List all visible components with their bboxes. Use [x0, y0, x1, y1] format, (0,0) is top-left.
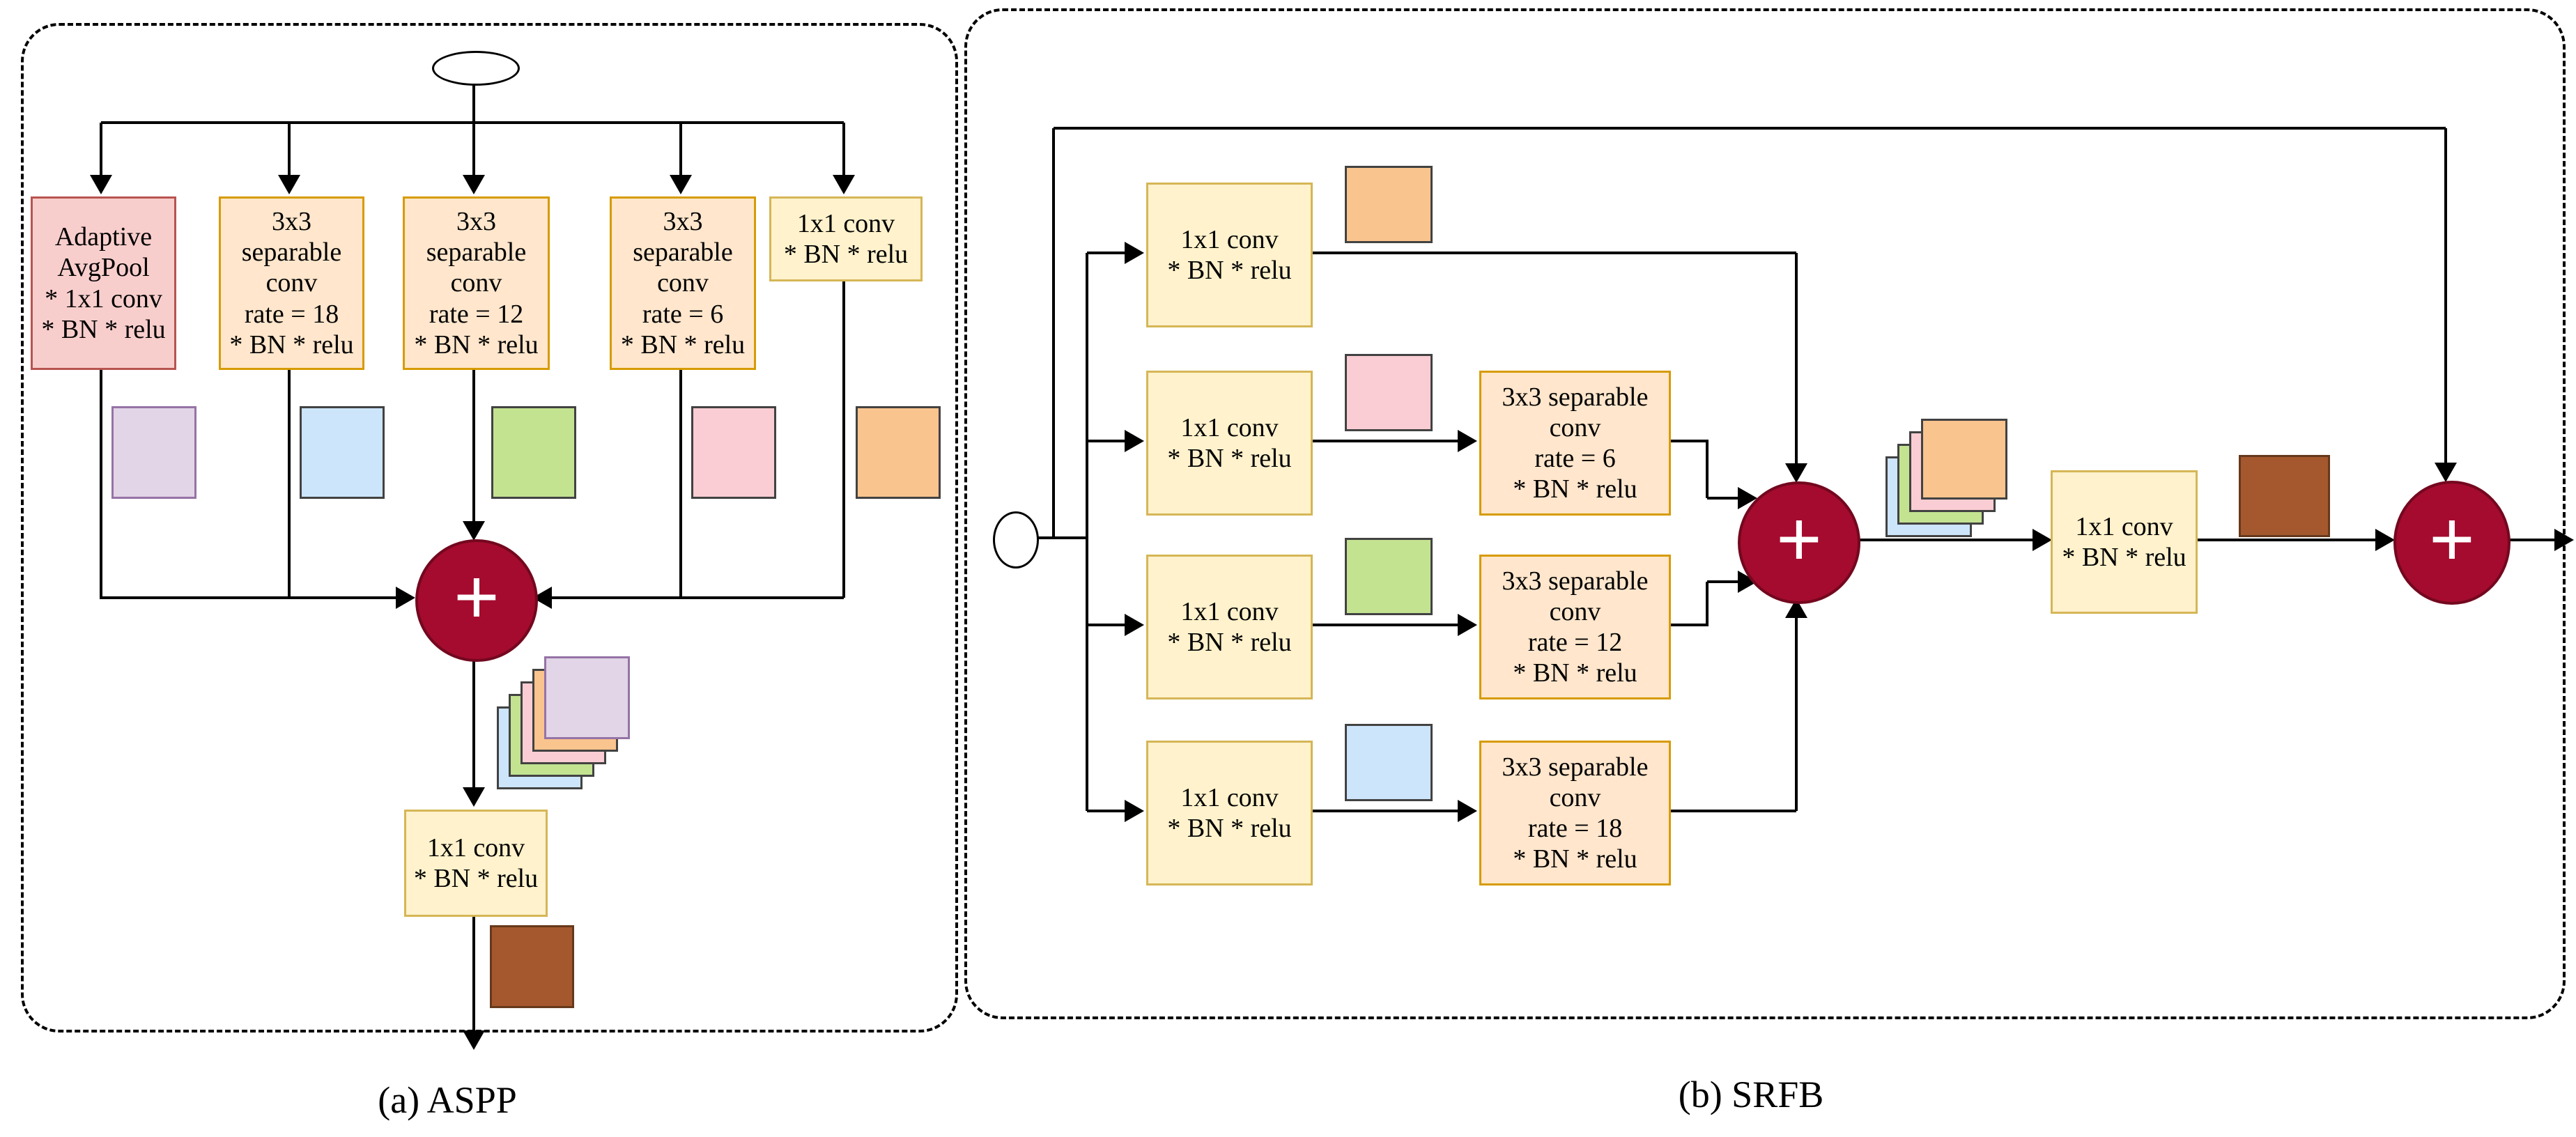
aspp-add-node: +	[415, 539, 538, 662]
aspp-output-conv-box: 1x1 conv* BN * relu	[404, 810, 548, 917]
arrowhead	[463, 787, 485, 807]
srfb-add-node-2: +	[2393, 481, 2511, 605]
text-line: 1x1 conv	[1180, 782, 1278, 813]
srfb-reduce-box-1: 1x1 conv* BN * relu	[1146, 183, 1313, 327]
aspp-sepconv-rate12-box: 3x3separableconvrate = 12* BN * relu	[403, 196, 550, 370]
diagram-canvas: AdaptiveAvgPool* 1x1 conv* BN * relu 3x3…	[0, 0, 2576, 1137]
srfb-projection-box: 1x1 conv* BN * relu	[2051, 470, 2198, 614]
srfb-caption: (b) SRFB	[1679, 1073, 1824, 1116]
arrowhead	[463, 175, 485, 194]
srfb-sepconv-rate18-box: 3x3 separableconvrate = 18* BN * relu	[1479, 741, 1671, 885]
srfb-feature-map-green	[1345, 538, 1433, 615]
text-line: 1x1 conv	[2075, 511, 2173, 542]
text-line: * BN * relu	[784, 239, 908, 270]
arrowhead	[463, 521, 485, 541]
arrowhead	[396, 587, 415, 609]
text-line: 1x1 conv	[1180, 224, 1278, 255]
arrowhead	[2033, 529, 2052, 551]
text-line: * BN * relu	[41, 314, 165, 345]
text-line: * BN * relu	[1167, 443, 1291, 474]
arrowhead	[1125, 430, 1144, 452]
aspp-feature-map-orange	[856, 406, 941, 499]
text-line: rate = 6	[1534, 443, 1615, 474]
aspp-avgpool-box: AdaptiveAvgPool* 1x1 conv* BN * relu	[31, 196, 176, 370]
text-line: 3x3	[663, 206, 703, 237]
text-line: rate = 18	[245, 299, 339, 330]
srfb-feature-map-orange	[1345, 166, 1433, 243]
plus-icon: +	[2429, 500, 2474, 578]
aspp-caption: (a) ASPP	[378, 1078, 517, 1122]
arrowhead	[90, 175, 112, 194]
arrowhead	[1125, 614, 1144, 636]
text-line: * BN * relu	[414, 863, 538, 894]
srfb-add-node-1: +	[1738, 481, 1860, 604]
text-line: 1x1 conv	[427, 833, 525, 863]
arrowhead	[670, 175, 692, 194]
text-line: AvgPool	[57, 252, 149, 283]
text-line: 1x1 conv	[1180, 412, 1278, 443]
srfb-reduce-box-3: 1x1 conv* BN * relu	[1146, 555, 1313, 699]
text-line: 3x3 separable	[1502, 566, 1649, 596]
text-line: 3x3 separable	[1502, 382, 1649, 412]
text-line: rate = 12	[429, 299, 523, 330]
text-line: 1x1 conv	[797, 208, 895, 239]
arrowhead	[463, 1030, 485, 1050]
srfb-stack-map-orange	[1921, 419, 2007, 500]
arrowhead	[1785, 463, 1807, 483]
aspp-stack-map-purple	[544, 656, 630, 739]
srfb-sepconv-rate12-box: 3x3 separableconvrate = 12* BN * relu	[1479, 555, 1671, 699]
text-line: 3x3 separable	[1502, 752, 1649, 782]
srfb-output-map-brown	[2239, 455, 2330, 537]
arrowhead	[833, 175, 855, 194]
text-line: rate = 12	[1528, 627, 1622, 658]
text-line: * BN * relu	[1167, 813, 1291, 844]
srfb-sepconv-rate6-box: 3x3 separableconvrate = 6* BN * relu	[1479, 371, 1671, 516]
aspp-sepconv-rate6-box: 3x3separableconvrate = 6* BN * relu	[610, 196, 756, 370]
text-line: * BN * relu	[414, 330, 538, 360]
text-line: * BN * relu	[1513, 474, 1637, 504]
arrowhead	[1458, 430, 1477, 452]
text-line: conv	[451, 268, 502, 298]
arrowhead	[1125, 242, 1144, 264]
text-line: conv	[1550, 596, 1601, 627]
text-line: rate = 18	[1528, 813, 1622, 844]
text-line: conv	[1550, 782, 1601, 813]
text-line: * BN * relu	[621, 330, 745, 360]
aspp-feature-map-green	[491, 406, 576, 499]
text-line: rate = 6	[642, 299, 723, 330]
aspp-feature-map-blue	[300, 406, 385, 499]
text-line: * 1x1 conv	[45, 284, 162, 314]
text-line: * BN * relu	[1167, 255, 1291, 286]
arrowhead	[1458, 614, 1477, 636]
aspp-feature-map-purple	[111, 406, 196, 499]
text-line: 3x3	[272, 206, 311, 237]
srfb-reduce-box-2: 1x1 conv* BN * relu	[1146, 371, 1313, 516]
text-line: Adaptive	[55, 222, 152, 252]
text-line: * BN * relu	[1513, 844, 1637, 874]
srfb-feature-map-pink	[1345, 354, 1433, 431]
text-line: separable	[633, 237, 732, 268]
text-line: 3x3	[456, 206, 496, 237]
text-line: * BN * relu	[2062, 542, 2186, 573]
aspp-input-node	[432, 51, 520, 86]
text-line: 1x1 conv	[1180, 596, 1278, 627]
srfb-feature-map-blue	[1345, 724, 1433, 801]
arrowhead	[2435, 463, 2457, 482]
aspp-output-map-brown	[490, 925, 574, 1008]
plus-icon: +	[454, 558, 499, 636]
aspp-feature-map-pink	[691, 406, 776, 499]
text-line: conv	[266, 268, 318, 298]
arrowhead	[1125, 800, 1144, 822]
aspp-1x1conv-box: 1x1 conv* BN * relu	[769, 196, 923, 281]
arrowhead	[2375, 529, 2395, 551]
text-line: * BN * relu	[1167, 627, 1291, 658]
text-line: * BN * relu	[1513, 658, 1637, 688]
text-line: separable	[426, 237, 526, 268]
srfb-input-node	[993, 511, 1039, 568]
aspp-sepconv-rate18-box: 3x3separableconvrate = 18* BN * relu	[219, 196, 364, 370]
text-line: conv	[657, 268, 709, 298]
arrowhead	[1458, 800, 1477, 822]
arrowhead	[2554, 529, 2574, 551]
arrowhead	[278, 175, 300, 194]
text-line: * BN * relu	[229, 330, 353, 360]
text-line: separable	[242, 237, 341, 268]
srfb-reduce-box-4: 1x1 conv* BN * relu	[1146, 741, 1313, 885]
plus-icon: +	[1776, 500, 1821, 578]
text-line: conv	[1550, 412, 1601, 443]
